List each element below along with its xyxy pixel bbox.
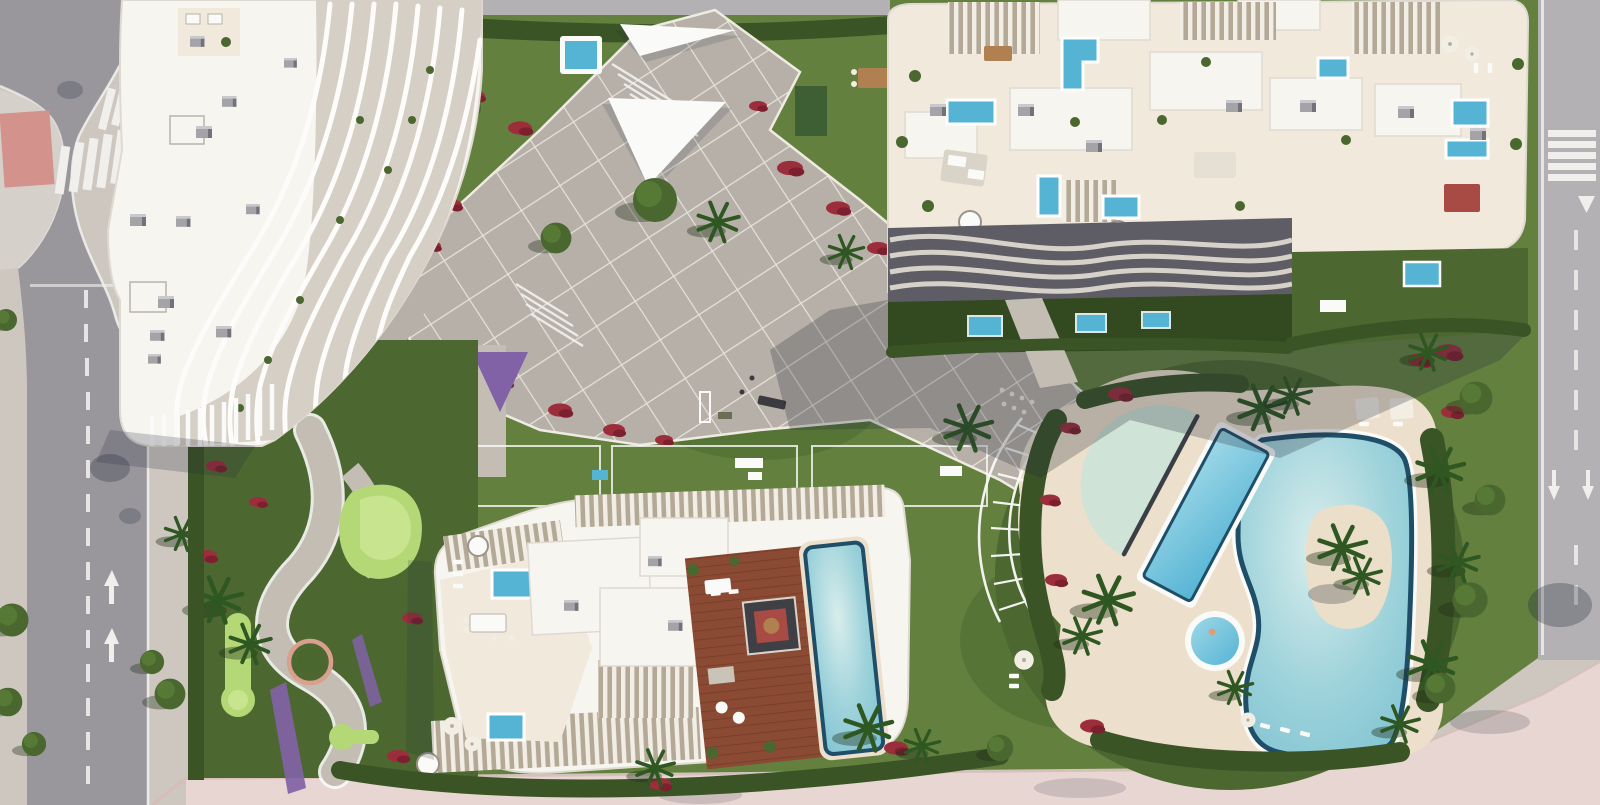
right-road xyxy=(1528,0,1600,660)
west-hedge xyxy=(188,430,204,780)
plunge-pool xyxy=(947,100,995,124)
garden-furniture xyxy=(1320,300,1346,312)
tree-shadow xyxy=(1450,710,1530,734)
tree-shadow-on-road xyxy=(57,81,83,99)
hvac-unit xyxy=(564,600,578,611)
planter xyxy=(909,70,921,82)
rooftop-parasol xyxy=(1441,35,1459,53)
chair xyxy=(851,69,857,75)
planter xyxy=(1201,57,1211,67)
roof-plunge-pool xyxy=(488,714,524,740)
red-crossing-pad xyxy=(0,110,55,187)
dining-table xyxy=(984,46,1012,61)
fitness-item xyxy=(740,390,745,395)
planter xyxy=(1235,201,1245,211)
planter xyxy=(922,200,934,212)
garden-pool xyxy=(1076,314,1106,332)
aerial-render-viewport xyxy=(0,0,1600,805)
plunge-pool xyxy=(1452,100,1488,126)
fitness-mat xyxy=(718,412,732,419)
planter xyxy=(1510,138,1522,150)
road-asphalt xyxy=(1538,0,1600,660)
lounge-rug xyxy=(940,149,988,187)
hvac-unit xyxy=(668,620,682,631)
fitness-item xyxy=(750,376,755,381)
wavy-balconies xyxy=(888,218,1292,304)
hvac-unit xyxy=(1398,106,1414,118)
garden-sofa xyxy=(735,458,763,468)
planter xyxy=(1512,58,1524,70)
sun-lounger xyxy=(1009,684,1019,688)
north-garden-pool xyxy=(565,41,597,69)
tree-shadow-on-road xyxy=(119,508,141,524)
hvac-unit xyxy=(648,556,662,566)
bather xyxy=(1209,629,1216,636)
hvac-unit xyxy=(930,104,946,116)
garden-sofa xyxy=(748,472,762,480)
planter xyxy=(221,37,231,47)
sun-lounger xyxy=(1009,674,1019,678)
plunge-pool xyxy=(1103,196,1139,218)
hvac-unit xyxy=(1018,104,1034,116)
building-c xyxy=(417,485,910,775)
plunge-pool xyxy=(1038,176,1060,216)
tree-shadow-on-road xyxy=(1528,583,1592,627)
hvac-unit xyxy=(1470,128,1486,140)
rooftop-lounger xyxy=(1488,63,1492,73)
hvac-unit xyxy=(1226,100,1242,112)
plunge-pool xyxy=(1446,140,1488,158)
garden-pool xyxy=(1142,312,1170,328)
garden-pool xyxy=(1404,262,1440,286)
edge-line xyxy=(1541,0,1544,655)
plunge-pool xyxy=(1318,58,1348,78)
rooftop-lounger xyxy=(1474,63,1478,73)
planter xyxy=(1157,115,1167,125)
building-b xyxy=(888,0,1528,388)
rooftop-table xyxy=(186,14,200,24)
planter xyxy=(1070,117,1080,127)
pool-parasol xyxy=(1241,713,1256,728)
building-c-shadow xyxy=(406,560,434,760)
deck-rug xyxy=(708,666,736,685)
mini-pool xyxy=(592,470,608,480)
garden-shed xyxy=(795,86,827,136)
garden-table xyxy=(940,466,962,476)
hvac-unit xyxy=(1086,140,1102,152)
sofa-set xyxy=(1194,152,1236,178)
spiral-stair xyxy=(468,536,488,556)
chair xyxy=(851,81,857,87)
rooftop-table xyxy=(208,14,222,24)
jacuzzi xyxy=(1191,617,1239,665)
roof-plunge-pool xyxy=(492,570,532,598)
rooftop-parasol xyxy=(1465,47,1480,62)
putting-circle-highlight xyxy=(228,690,248,710)
sun-lounger xyxy=(1393,422,1403,426)
planter xyxy=(896,136,908,148)
sun-lounger xyxy=(1359,422,1369,426)
hvac-unit xyxy=(1300,100,1316,112)
pool-parasol xyxy=(1014,650,1034,670)
planter-shrub xyxy=(298,648,322,672)
striped-rug xyxy=(1444,184,1480,212)
garden-pool xyxy=(968,316,1002,336)
aerial-scene xyxy=(0,0,1600,805)
planter xyxy=(1341,135,1351,145)
dining-table xyxy=(470,614,506,632)
tree-shadow xyxy=(1034,778,1126,798)
